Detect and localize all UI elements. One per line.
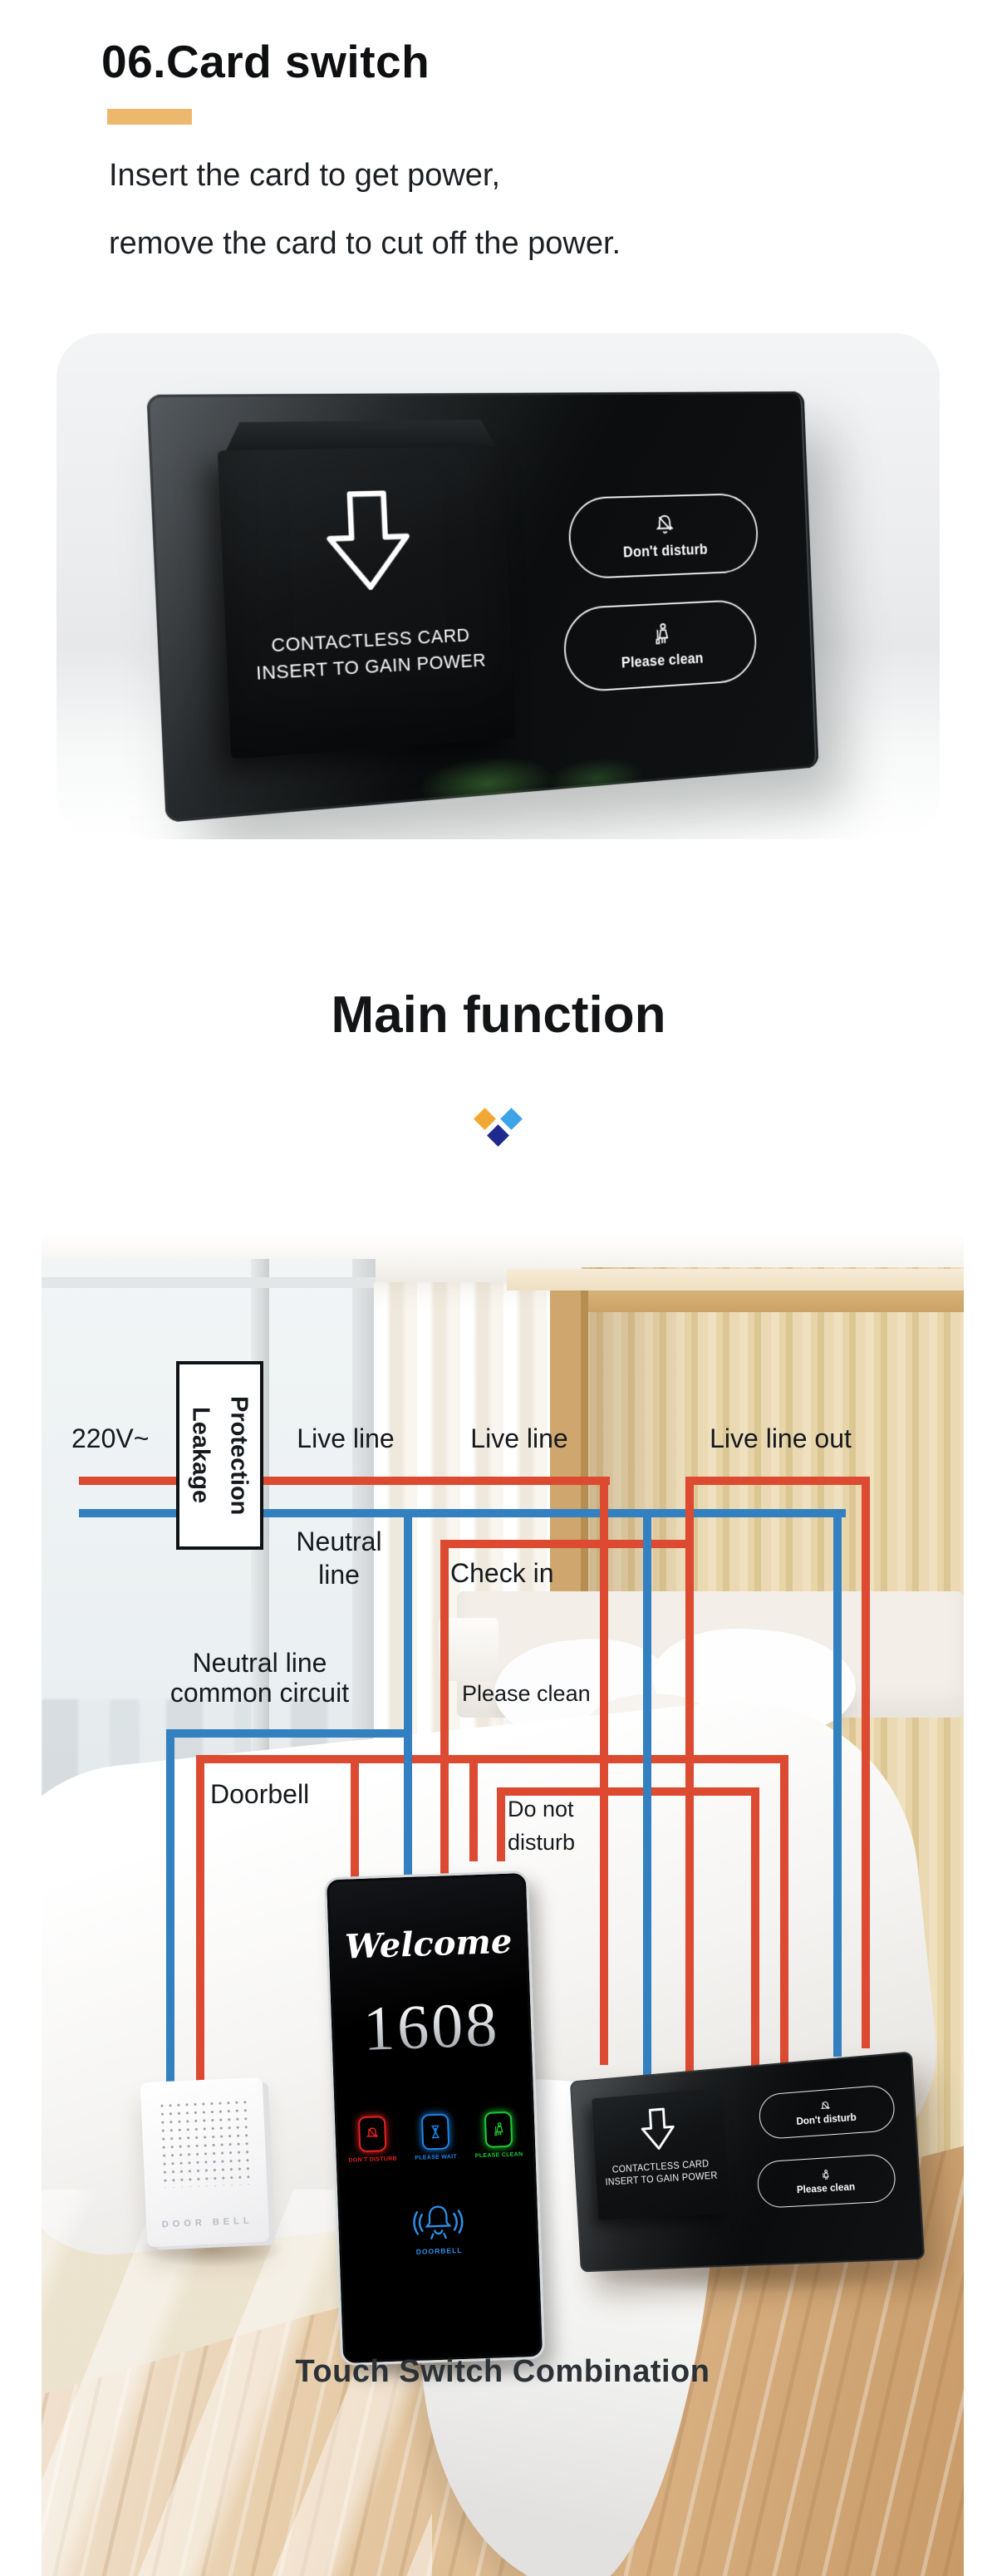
wire-live-main-drop xyxy=(600,1477,608,2065)
touch-dnd-label: DON'T DISTURB xyxy=(348,2156,397,2164)
touch-dont-disturb-button: DON'T DISTURB xyxy=(351,2116,394,2164)
doorbell-device: DOOR BELL xyxy=(140,2077,269,2247)
touch-panel-1608: Welcome 1608 DON'T DISTURB xyxy=(324,1871,545,2366)
photo-window-rail xyxy=(42,1277,376,1288)
wire-live-checkin-drop xyxy=(440,1540,449,1878)
slot-instruction: CONTACTLESS CARD INSERT TO GAIN POWER xyxy=(254,622,487,687)
housekeeper-icon xyxy=(818,2168,832,2182)
label-please-clean: Please clean xyxy=(462,1681,591,1708)
wall-card-slot: CONTACTLESS CARD INSERT TO GAIN POWER xyxy=(592,2088,729,2220)
section-heading: 06.Card switch xyxy=(101,35,430,88)
wire-live-checkin xyxy=(440,1540,694,1548)
welcome-script: Welcome xyxy=(328,1921,528,1967)
wire-neutral-branch-right xyxy=(833,1509,842,2057)
touch-wait-label: PLEASE WAIT xyxy=(415,2154,457,2161)
card-slot: CONTACTLESS CARD INSERT TO GAIN POWER xyxy=(218,446,515,760)
wire-live-stub-1 xyxy=(351,1755,359,1878)
label-do-not-disturb: Do not disturb xyxy=(508,1792,575,1859)
label-live-line-1: Live line xyxy=(287,1423,404,1455)
wire-live-out-left-drop xyxy=(685,1477,694,2082)
neutral-common-line1: Neutral line xyxy=(129,1648,390,1678)
touch-clean-label: PLEASE CLEAN xyxy=(475,2151,523,2159)
touch-doorbell-button: DOORBELL xyxy=(338,2199,539,2259)
product-image-card: CONTACTLESS CARD INSERT TO GAIN POWER Do… xyxy=(56,333,940,839)
intro-text-line2: remove the card to cut off the power. xyxy=(109,226,621,262)
touch-please-clean-button: PLEASE CLEAN xyxy=(477,2111,520,2159)
insert-arrow-icon xyxy=(636,2105,680,2153)
diamond-blue xyxy=(500,1108,523,1130)
dont-disturb-label: Don't disturb xyxy=(623,541,709,561)
leakage-line1: Leakage xyxy=(182,1396,220,1515)
wire-live-doorbell-drop xyxy=(196,1755,204,2082)
neutral-line-word2: line xyxy=(277,1558,401,1591)
main-function-heading: Main function xyxy=(0,986,997,1045)
diagram-caption: Touch Switch Combination xyxy=(42,2354,964,2390)
please-clean-label: Please clean xyxy=(621,650,704,671)
wall-clean-label: Please clean xyxy=(797,2182,856,2195)
label-neutral-line: Neutral line xyxy=(277,1525,401,1591)
wire-live-out-right-drop xyxy=(862,1477,870,2048)
wire-neutral-common xyxy=(166,1729,412,1738)
touch-please-wait-button: PLEASE WAIT xyxy=(414,2113,457,2161)
wire-live-main xyxy=(79,1477,610,1485)
label-220v: 220V~ xyxy=(71,1423,149,1455)
bell-slash-icon xyxy=(357,2116,386,2152)
doorbell-device-label: DOOR BELL xyxy=(146,2215,268,2230)
dnd-line2: disturb xyxy=(508,1826,575,1859)
leakage-protection-box: Leakage Protection xyxy=(176,1361,263,1550)
wall-dont-disturb-button: Don't disturb xyxy=(758,2084,896,2140)
neutral-line-word1: Neutral xyxy=(277,1525,401,1558)
diamond-divider-icon xyxy=(470,1107,530,1150)
wire-live-dnd-left-stub xyxy=(497,1787,505,1861)
diamond-navy xyxy=(487,1124,509,1147)
wire-neutral-doorbell-drop xyxy=(166,1729,174,2082)
wire-live-loop-right-drop xyxy=(780,1755,788,2069)
label-neutral-common: Neutral line common circuit xyxy=(129,1648,390,1708)
wire-live-dnd-right-drop xyxy=(751,1787,759,2086)
wiring-diagram-photo: 220V~ Leakage Protection Live line Live … xyxy=(42,1234,964,2576)
doorbell-speaker-holes xyxy=(158,2098,250,2189)
bell-slash-icon xyxy=(818,2099,832,2114)
housekeeper-icon xyxy=(484,2111,512,2148)
dont-disturb-button: Don't disturb xyxy=(567,493,759,580)
bell-slash-icon xyxy=(651,511,678,539)
label-check-in: Check in xyxy=(450,1558,554,1590)
wire-live-out-top xyxy=(685,1477,870,1485)
leakage-protection-label: Leakage Protection xyxy=(182,1396,258,1515)
leakage-line2: Protection xyxy=(220,1396,258,1515)
dnd-line1: Do not xyxy=(508,1792,575,1826)
wire-neutral-branch-left xyxy=(404,1509,412,1878)
intro-text-line1: Insert the card to get power, xyxy=(109,158,500,194)
heading-underline-bar xyxy=(107,109,192,125)
wall-card-switch-panel: CONTACTLESS CARD INSERT TO GAIN POWER Do… xyxy=(570,2051,925,2272)
diamond-orange xyxy=(474,1108,496,1130)
photo-ceiling-cove xyxy=(507,1269,964,1290)
housekeeper-icon xyxy=(648,620,675,649)
please-clean-button: Please clean xyxy=(562,598,758,693)
insert-arrow-icon xyxy=(315,484,420,597)
wire-live-stub-2 xyxy=(469,1755,478,1861)
neutral-common-line2: common circuit xyxy=(129,1678,390,1708)
wall-please-clean-button: Please clean xyxy=(756,2153,896,2209)
room-number: 1608 xyxy=(331,1988,533,2067)
wall-dnd-label: Don't disturb xyxy=(796,2112,857,2126)
touch-panel-icon-row: DON'T DISTURB PLEASE WAIT xyxy=(335,2111,536,2164)
wire-live-doorbell-loop xyxy=(196,1755,788,1763)
wire-neutral-branch-mid xyxy=(643,1509,651,2094)
doorbell-bell-icon xyxy=(406,2201,471,2245)
card-switch-panel: CONTACTLESS CARD INSERT TO GAIN POWER Do… xyxy=(146,391,818,823)
touch-doorbell-label: DOORBELL xyxy=(416,2246,463,2256)
label-live-line-out: Live line out xyxy=(691,1423,870,1455)
page: 06.Card switch Insert the card to get po… xyxy=(0,0,997,2576)
label-live-line-2: Live line xyxy=(461,1423,577,1455)
label-doorbell: Doorbell xyxy=(210,1779,309,1811)
hourglass-icon xyxy=(420,2113,449,2150)
wall-slot-instruction: CONTACTLESS CARD INSERT TO GAIN POWER xyxy=(605,2158,719,2190)
